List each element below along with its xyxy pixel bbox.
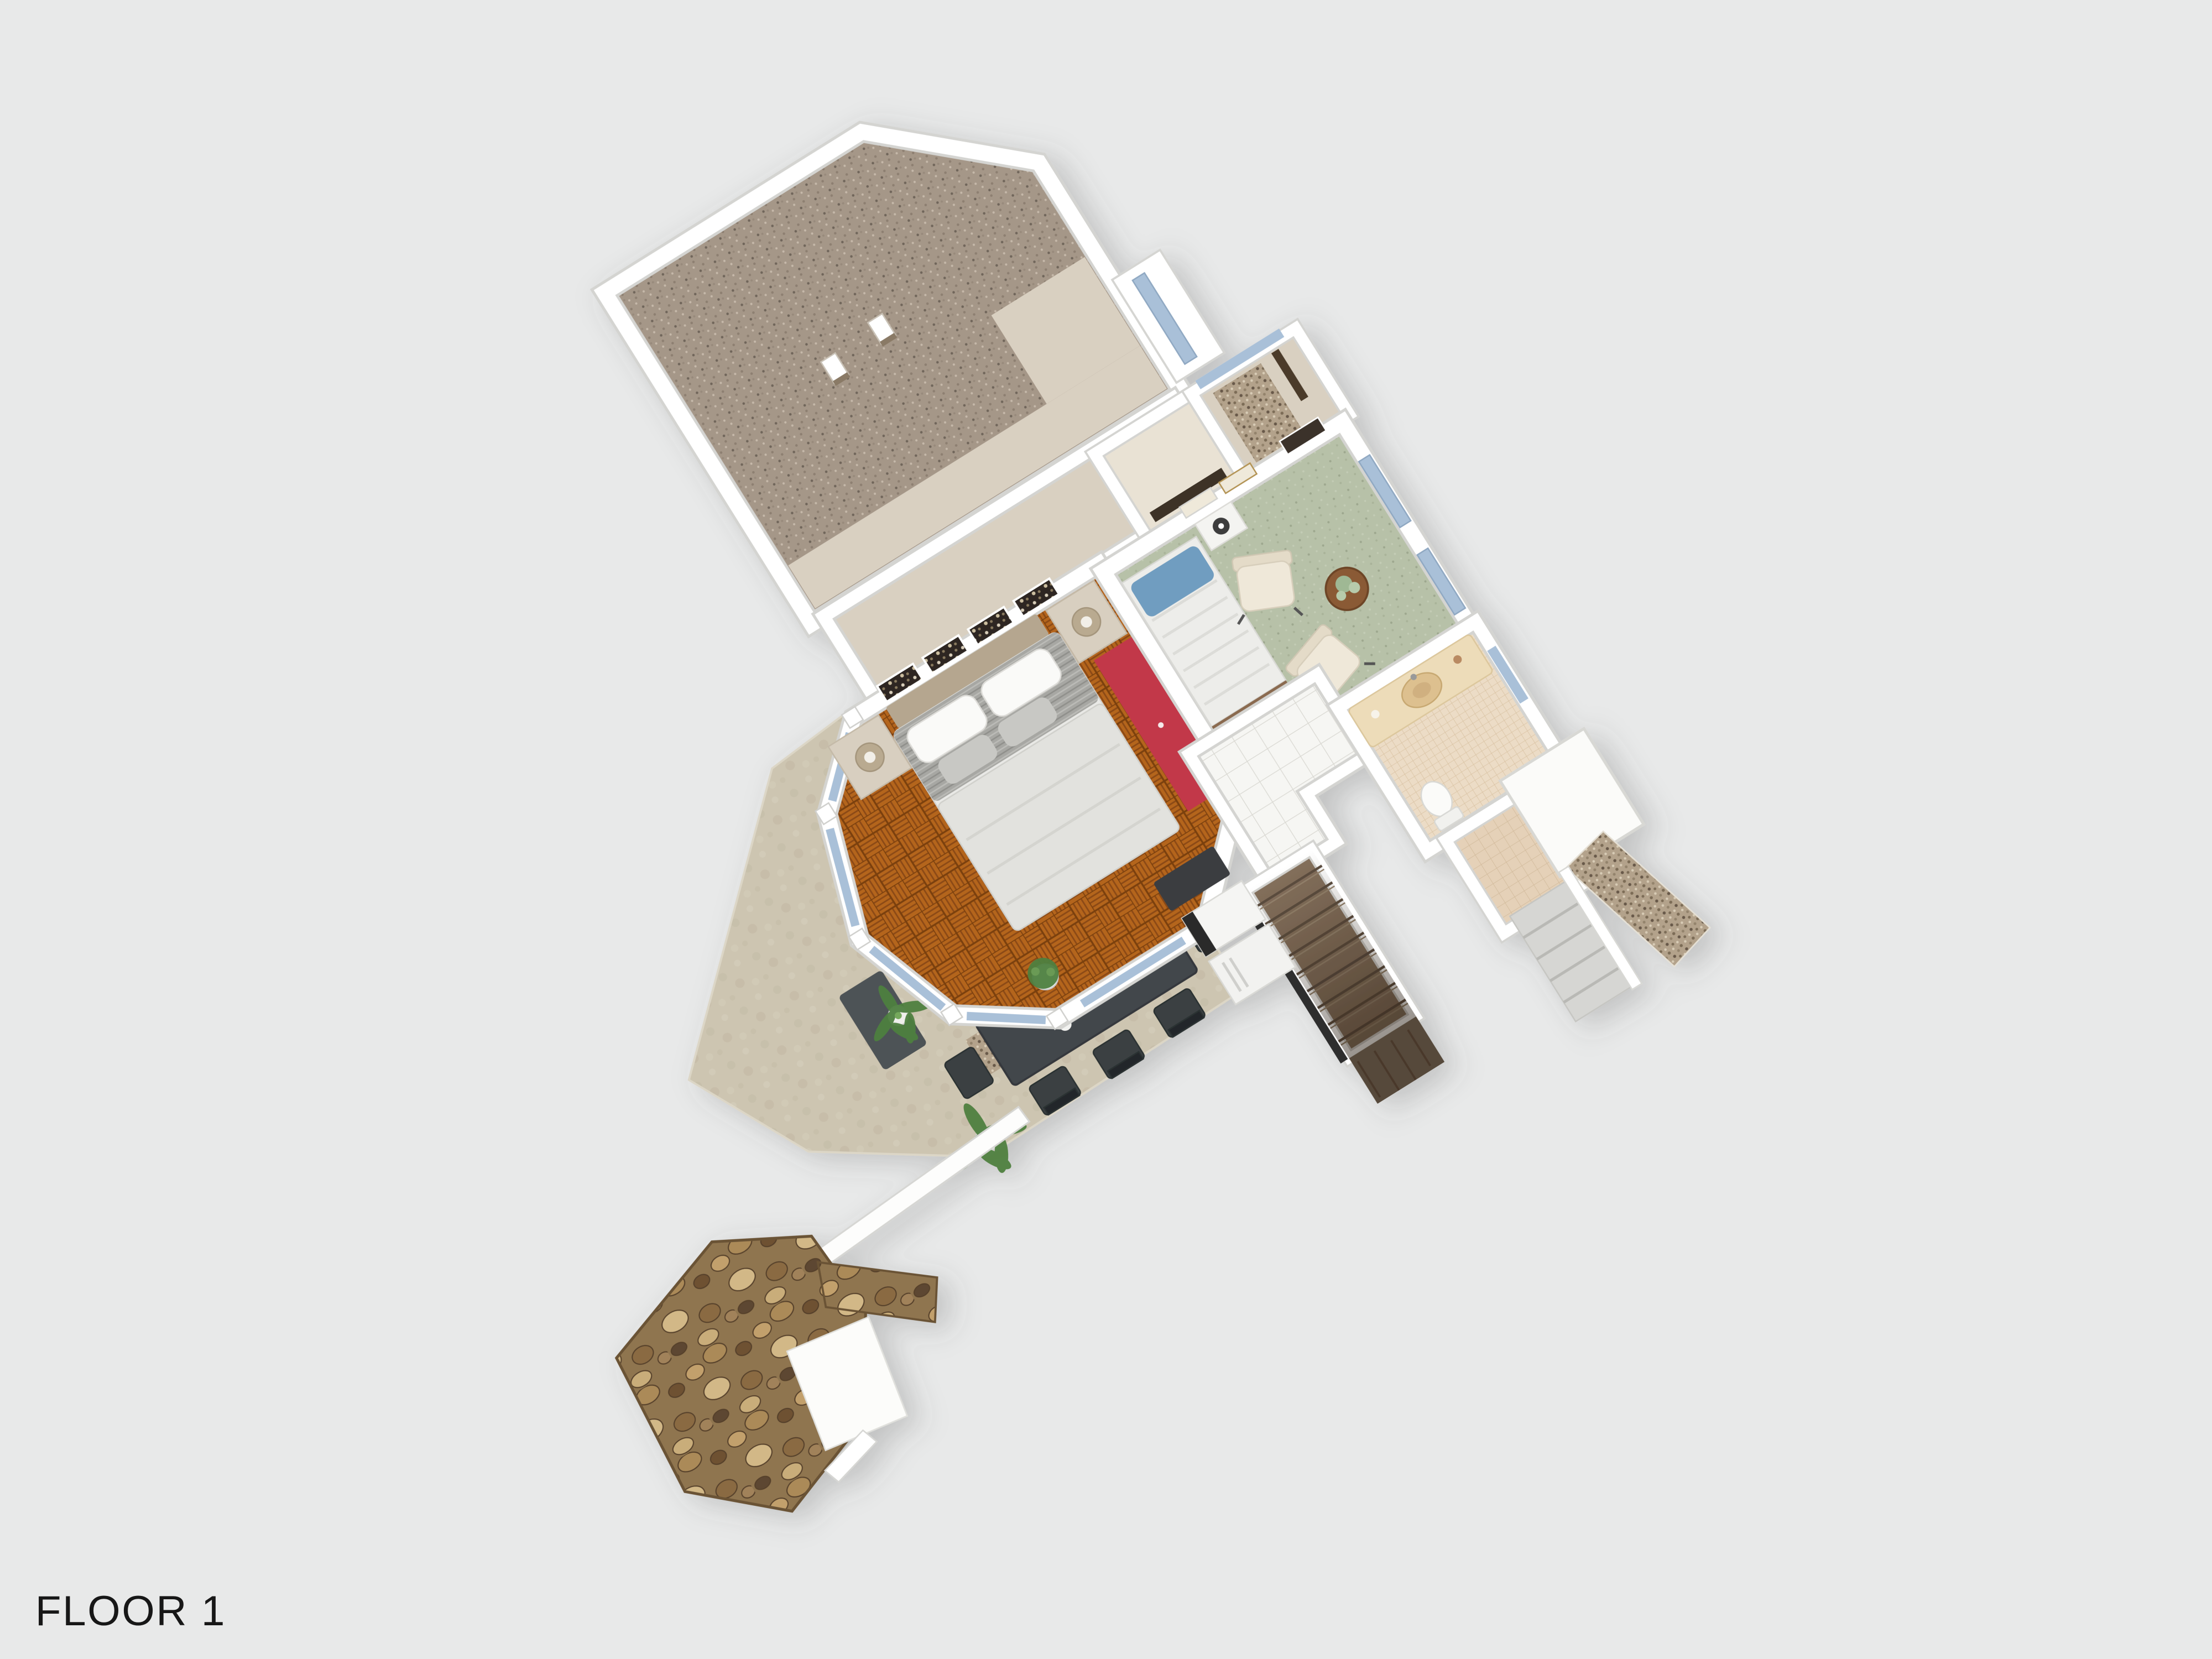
- floor-plan-canvas: FLOOR 1: [0, 0, 2212, 1659]
- floor-plan-screen: FLOOR 1: [0, 0, 2212, 1659]
- floor-label: FLOOR 1: [35, 1588, 226, 1635]
